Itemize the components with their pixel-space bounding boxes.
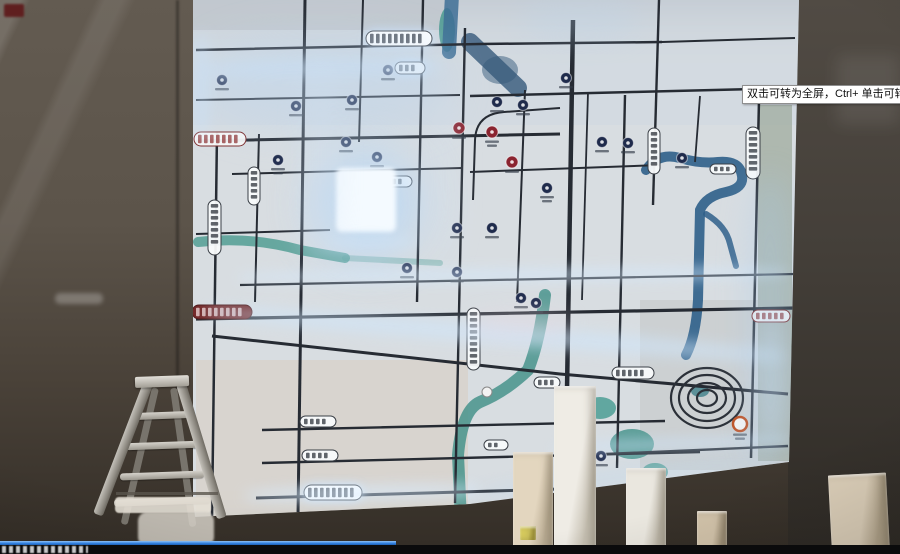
poi-label-blur (490, 110, 504, 112)
poi-label-blur (559, 86, 573, 88)
label-text-blur (251, 183, 257, 187)
poi-glyph (294, 104, 298, 108)
label-text-blur (376, 34, 380, 43)
road-line (695, 96, 700, 162)
poi-glyph (599, 454, 603, 458)
poi-glyph (375, 155, 379, 159)
road-line (232, 168, 462, 174)
label-text-blur (550, 380, 554, 385)
poi-label-blur (450, 236, 464, 238)
road-label-pill (208, 200, 221, 255)
label-text-blur (226, 308, 230, 316)
step-ladder (88, 370, 248, 554)
poi-glyph (386, 68, 390, 72)
road-line (470, 165, 660, 172)
label-text-blur (405, 65, 409, 71)
label-text-blur (208, 308, 212, 316)
label-text-blur (251, 195, 257, 199)
label-text-blur (304, 419, 308, 424)
ladder-top-cap (135, 375, 189, 388)
poi-glyph (490, 130, 494, 134)
label-text-blur (320, 488, 324, 497)
label-text-blur (198, 135, 202, 143)
poi-label-blur (450, 280, 464, 282)
label-text-blur (222, 135, 226, 143)
label-text-blur (470, 330, 477, 334)
label-text-blur (251, 171, 257, 175)
label-text-blur (411, 65, 415, 71)
label-text-blur (756, 313, 760, 319)
ladder-rung (126, 441, 198, 451)
label-text-blur (538, 380, 542, 385)
label-text-blur (312, 453, 316, 458)
poi-glyph (564, 76, 568, 80)
white-object (115, 497, 211, 513)
poi-label-blur (594, 464, 608, 466)
poi-glyph (455, 226, 459, 230)
poi-label-blur (542, 200, 552, 202)
poi-label-blur (675, 166, 689, 168)
road-line (617, 95, 625, 468)
road-line (582, 92, 588, 300)
poi-label-blur (381, 78, 395, 80)
poi-marker-icon (482, 387, 492, 397)
road-line (662, 38, 795, 42)
poi-label-blur (289, 114, 303, 116)
label-text-blur (196, 308, 200, 316)
label-text-blur (418, 34, 422, 43)
label-text-blur (399, 65, 403, 71)
poi-glyph (220, 78, 224, 82)
label-text-blur (202, 308, 206, 316)
poi-label-blur (514, 306, 528, 308)
road-label-pill (366, 31, 432, 46)
road-label-pill (746, 127, 760, 179)
label-text-blur (651, 138, 657, 142)
label-text-blur (251, 189, 257, 193)
label-text-blur (470, 318, 477, 322)
poi-glyph (495, 100, 499, 104)
wall-seam (176, 0, 179, 390)
label-text-blur (232, 308, 236, 316)
label-text-blur (370, 34, 374, 43)
poi-glyph (534, 301, 538, 305)
label-text-blur (251, 177, 257, 181)
label-text-blur (211, 216, 218, 220)
label-text-blur (238, 308, 242, 316)
foam-pillar (626, 468, 666, 554)
label-text-blur (749, 155, 757, 159)
label-text-blur (220, 308, 224, 316)
label-text-blur (494, 443, 498, 447)
road-line (196, 308, 795, 319)
concentric-ring-landmark (671, 368, 743, 428)
label-text-blur (211, 234, 218, 238)
label-text-blur (651, 144, 657, 148)
poi-label-blur (529, 311, 543, 313)
label-text-blur (544, 380, 548, 385)
label-text-blur (726, 167, 730, 171)
label-text-blur (350, 488, 354, 497)
poi-marker-icon (733, 417, 747, 431)
label-text-blur (651, 156, 657, 160)
wall-white-streak (55, 293, 103, 304)
poi-label-blur (400, 276, 414, 278)
poi-label-blur (215, 88, 229, 90)
label-text-blur (470, 348, 477, 352)
poi-label-blur (733, 434, 747, 436)
road-line (255, 134, 259, 302)
label-text-blur (762, 313, 766, 319)
label-text-blur (338, 488, 342, 497)
label-text-blur (400, 34, 404, 43)
video-frame[interactable]: 双击可转为全屏，Ctrl+ 单击可转为 (0, 0, 900, 554)
label-text-blur (720, 167, 724, 171)
label-text-blur (388, 34, 392, 43)
label-text-blur (211, 210, 218, 214)
label-text-blur (211, 204, 218, 208)
label-text-blur (306, 453, 310, 458)
river (646, 157, 742, 356)
label-text-blur (749, 143, 757, 147)
label-text-blur (651, 150, 657, 154)
poi-label-blur (452, 137, 466, 139)
poi-label-blur (505, 171, 519, 173)
label-text-blur (470, 324, 477, 328)
poi-label-blur (735, 438, 745, 440)
label-text-blur (470, 312, 477, 316)
poi-glyph (600, 140, 604, 144)
road-line (196, 134, 560, 141)
label-text-blur (749, 161, 757, 165)
tooltip-text: 双击可转为全屏，Ctrl+ 单击可转为 (747, 88, 900, 100)
poi-glyph (626, 141, 630, 145)
label-text-blur (228, 135, 232, 143)
poi-label-blur (621, 151, 635, 153)
label-text-blur (714, 167, 718, 171)
poi-label-blur (540, 196, 554, 198)
label-text-blur (634, 370, 638, 376)
label-text-blur (749, 131, 757, 135)
poi-label-blur (485, 141, 499, 143)
label-text-blur (406, 34, 410, 43)
fullscreen-tooltip: 双击可转为全屏，Ctrl+ 单击可转为 (742, 85, 900, 104)
road-label-pill (194, 132, 246, 146)
poi-glyph (490, 226, 494, 230)
label-text-blur (749, 137, 757, 141)
label-text-blur (204, 135, 208, 143)
label-text-blur (780, 313, 784, 319)
poi-label-blur (370, 165, 384, 167)
foam-pillar (520, 526, 536, 540)
foam-pillar (828, 473, 890, 554)
road-line (359, 0, 363, 142)
label-text-blur (318, 453, 322, 458)
label-text-blur (749, 149, 757, 153)
label-text-blur (322, 419, 326, 424)
label-text-blur (768, 313, 772, 319)
label-text-blur (234, 135, 238, 143)
label-text-blur (344, 488, 348, 497)
player-bottom-bar[interactable] (0, 545, 900, 554)
poi-label-blur (485, 236, 499, 238)
wall-red-mark (4, 4, 24, 17)
poi-label-blur (339, 150, 353, 152)
label-text-blur (211, 222, 218, 226)
road-line (517, 90, 525, 302)
label-text-blur (210, 135, 214, 143)
poi-label-blur (516, 113, 530, 115)
label-text-blur (616, 370, 620, 376)
label-text-blur (386, 179, 390, 184)
label-text-blur (310, 419, 314, 424)
label-text-blur (470, 354, 477, 358)
poi-glyph (405, 266, 409, 270)
label-text-blur (488, 443, 492, 447)
label-text-blur (211, 228, 218, 232)
label-text-blur (774, 313, 778, 319)
poi-glyph (455, 270, 459, 274)
label-text-blur (324, 453, 328, 458)
poi-label-blur (271, 168, 285, 170)
label-text-blur (326, 488, 330, 497)
poi-glyph (545, 186, 549, 190)
poi-glyph (276, 158, 280, 162)
label-text-blur (470, 342, 477, 346)
poi-glyph (519, 296, 523, 300)
label-text-blur (651, 162, 657, 166)
label-text-blur (398, 179, 402, 184)
label-text-blur (640, 370, 644, 376)
label-text-blur (332, 488, 336, 497)
river (345, 258, 440, 263)
label-text-blur (651, 132, 657, 136)
label-text-blur (216, 135, 220, 143)
label-text-blur (749, 167, 757, 171)
label-text-blur (314, 488, 318, 497)
road-line (298, 0, 305, 516)
poi-glyph (521, 103, 525, 107)
river (706, 214, 736, 266)
label-text-blur (382, 34, 386, 43)
poi-glyph (680, 156, 684, 160)
label-text-blur (214, 308, 218, 316)
poi-label-blur (487, 145, 497, 147)
poi-label-blur (273, 172, 283, 174)
ladder-rung (120, 471, 204, 481)
label-text-blur (392, 179, 396, 184)
label-text-blur (470, 360, 477, 364)
label-text-blur (308, 488, 312, 497)
label-text-blur (412, 34, 416, 43)
poi-glyph (350, 98, 354, 102)
wall-light-streaks (0, 0, 200, 300)
label-text-blur (470, 336, 477, 340)
label-text-blur (628, 370, 632, 376)
label-text-blur (394, 34, 398, 43)
poi-glyph (510, 160, 514, 164)
foam-pillar (554, 386, 596, 554)
label-text-blur (316, 419, 320, 424)
progress-fill[interactable] (0, 541, 396, 545)
poi-glyph (457, 126, 461, 130)
player-status-text-blurred (2, 546, 88, 553)
poi-label-blur (345, 108, 359, 110)
poi-label-blur (595, 150, 609, 152)
ladder-tray (116, 492, 218, 495)
label-text-blur (622, 370, 626, 376)
poi-glyph (344, 140, 348, 144)
label-text-blur (211, 240, 218, 244)
